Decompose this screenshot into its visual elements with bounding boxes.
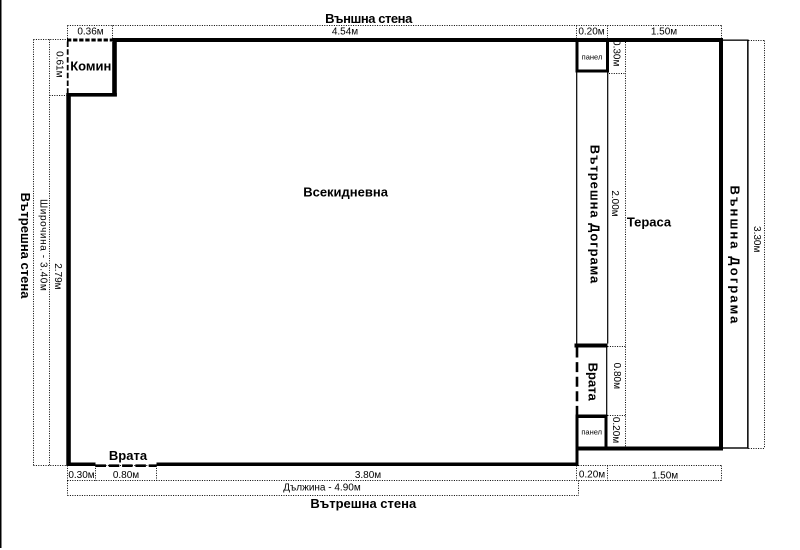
svg-text:0.61м: 0.61м — [53, 51, 64, 77]
svg-text:0.36м: 0.36м — [77, 27, 103, 38]
svg-text:2.79м: 2.79м — [52, 263, 63, 289]
svg-text:Врата: Врата — [109, 448, 148, 463]
svg-text:0.30м: 0.30м — [68, 470, 94, 481]
svg-text:3.30м: 3.30м — [751, 226, 762, 252]
svg-text:1.50м: 1.50м — [652, 471, 678, 482]
svg-text:0.20м: 0.20м — [579, 470, 605, 481]
svg-text:Външна Дограма: Външна Дограма — [728, 186, 743, 326]
svg-text:0.20м: 0.20м — [610, 417, 621, 443]
svg-text:0.80м: 0.80м — [113, 470, 139, 481]
svg-text:панел: панел — [582, 53, 603, 62]
svg-text:0.30м: 0.30м — [611, 40, 622, 66]
svg-text:Вътрешна стена: Вътрешна стена — [18, 193, 33, 300]
svg-text:Вътрешна Дограма: Вътрешна Дограма — [588, 145, 603, 284]
svg-text:0.80м: 0.80м — [611, 363, 622, 389]
svg-text:Вътрешна стена: Вътрешна стена — [310, 496, 417, 511]
svg-text:Врата: Врата — [586, 363, 601, 402]
svg-text:Дължина - 4.90м: Дължина - 4.90м — [283, 483, 361, 494]
svg-text:панел: панел — [581, 428, 602, 437]
svg-text:0.20м: 0.20м — [578, 27, 604, 38]
svg-text:Външна стена: Външна стена — [325, 11, 413, 26]
svg-text:4.54м: 4.54м — [332, 27, 358, 38]
svg-text:Комин: Комин — [70, 59, 111, 74]
svg-text:1.50м: 1.50м — [651, 27, 677, 38]
svg-text:2.00м: 2.00м — [609, 190, 620, 216]
svg-text:Тераса: Тераса — [627, 214, 672, 229]
svg-text:Широчина - 3.40м: Широчина - 3.40м — [38, 199, 49, 291]
svg-text:Всекидневна: Всекидневна — [303, 185, 389, 200]
svg-text:3.80м: 3.80м — [355, 470, 381, 481]
